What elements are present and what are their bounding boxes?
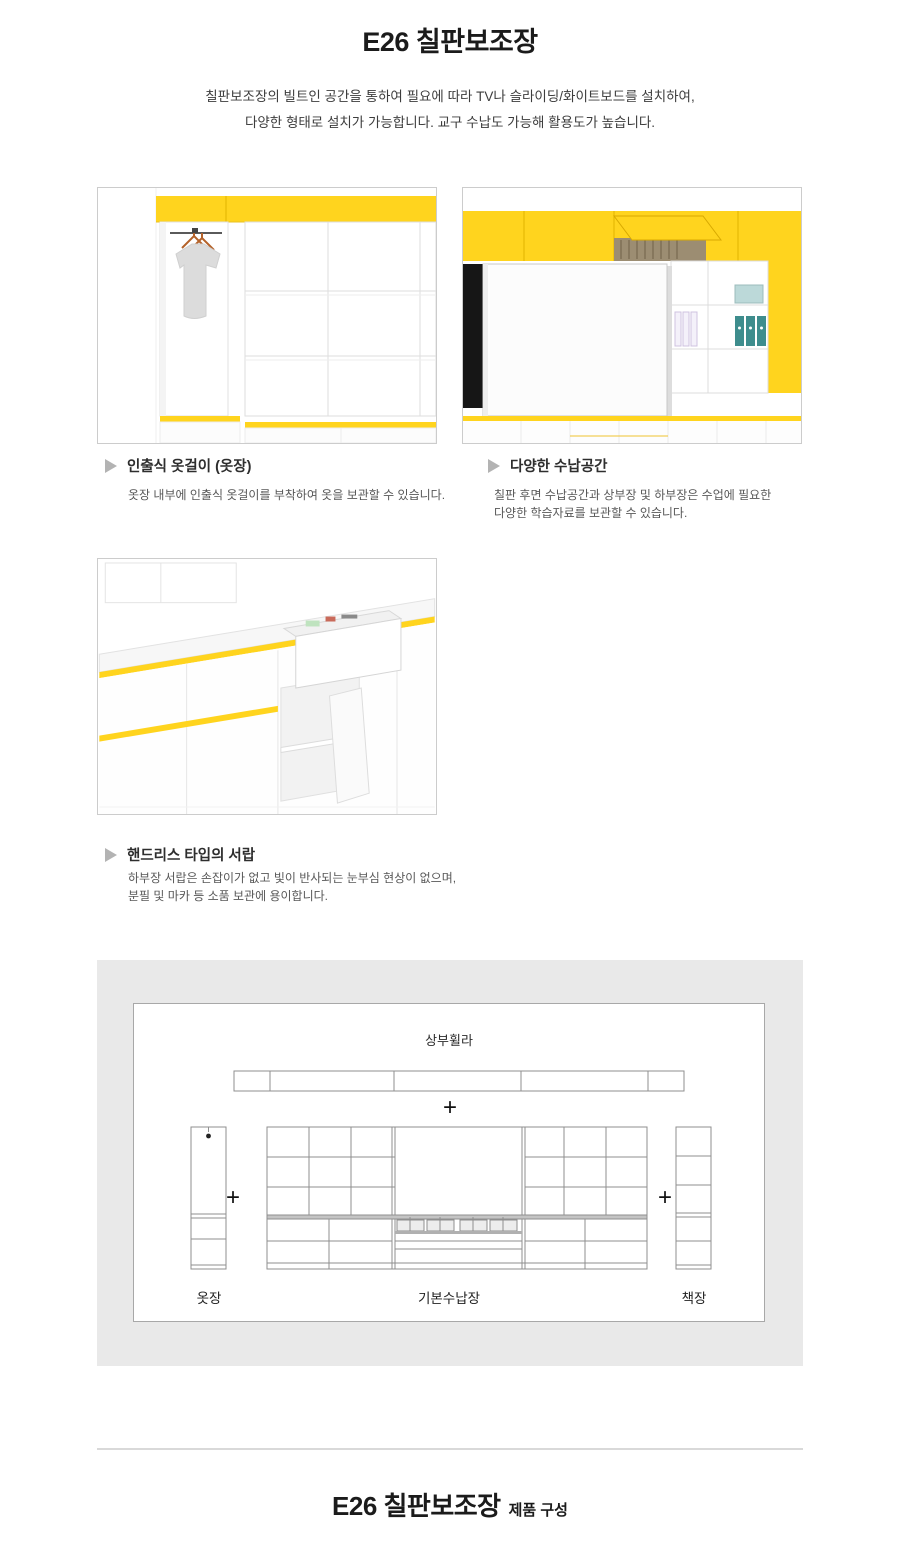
triangle-right-icon: [488, 459, 500, 473]
wardrobe-opening: [160, 222, 228, 416]
triangle-right-icon: [105, 848, 117, 862]
flap-opening: [614, 238, 706, 261]
teal-box: [735, 285, 763, 303]
composition-diagram: 상부휠라 + + + 옷장 기본수납장 책장: [133, 1003, 765, 1322]
feature-desc-3: 하부장 서랍은 손잡이가 없고 빛이 반사되는 눈부심 현상이 없으며, 분필 …: [128, 869, 456, 905]
bookcase-label: 책장: [658, 1287, 730, 1307]
top-filler-bar: [234, 1071, 684, 1091]
sliding-whiteboard: [483, 264, 672, 416]
open-flap-door: [614, 216, 721, 240]
desc-line: 하부장 서랍은 손잡이가 없고 빛이 반사되는 눈부심 현상이 없으며,: [128, 869, 456, 887]
page-title: E26 칠판보조장: [0, 20, 900, 59]
wardrobe-illustration: [98, 188, 436, 443]
subtitle-line-1: 칠판보조장의 빌트인 공간을 통하여 필요에 따라 TV나 슬라이딩/화이트보드…: [0, 84, 900, 110]
bookcase-unit: [676, 1127, 711, 1269]
white-binders: [675, 312, 697, 346]
plus-sign: +: [650, 1186, 680, 1210]
yellow-side-panel: [768, 261, 801, 393]
plus-sign: +: [218, 1186, 248, 1210]
drawer-contents: [306, 621, 320, 627]
feature-desc-1: 옷장 내부에 인출식 옷걸이를 부착하여 옷을 보관할 수 있습니다.: [128, 486, 445, 504]
footer-title-main: E26 칠판보조장: [332, 1491, 501, 1521]
upper-shelf-corner: [105, 563, 236, 603]
desc-line: 칠판 후면 수납공간과 상부장 및 하부장은 수업에 필요한: [494, 486, 771, 504]
yellow-top-cabinet: [156, 196, 436, 222]
rail-bracket: [192, 228, 198, 233]
feature-title: 인출식 옷걸이 (옷장): [127, 455, 251, 476]
plus-sign: +: [435, 1096, 465, 1120]
feature-heading-3: 핸드리스 타입의 서랍: [105, 844, 255, 865]
desc-line: 분필 및 마카 등 소품 보관에 용이합니다.: [128, 887, 456, 905]
feature-desc-2: 칠판 후면 수납공간과 상부장 및 하부장은 수업에 필요한 다양한 학습자료를…: [494, 486, 771, 522]
footer-title-suffix: 제품 구성: [509, 1502, 568, 1519]
yellow-top-cabinet: [463, 211, 801, 261]
feature-heading-1: 인출식 옷걸이 (옷장): [105, 455, 251, 476]
product-photo-wardrobe: [97, 187, 437, 444]
feature-heading-2: 다양한 수납공간: [488, 455, 607, 476]
composition-section: 상부휠라 + + + 옷장 기본수납장 책장: [97, 960, 803, 1366]
open-shelf-grid: [245, 222, 436, 416]
subtitle-line-2: 다양한 형태로 설치가 가능합니다. 교구 수납도 가능해 활용도가 높습니다.: [0, 110, 900, 136]
composition-lineart: [134, 1004, 764, 1321]
product-photo-whiteboard: [462, 187, 802, 444]
rear-shelf-grid: [671, 261, 768, 393]
drawer-illustration: [98, 559, 436, 814]
lower-cabinet: [463, 416, 801, 443]
desc-line: 다양한 학습자료를 보관할 수 있습니다.: [494, 504, 771, 522]
triangle-right-icon: [105, 459, 117, 473]
feature-title: 다양한 수납공간: [510, 455, 607, 476]
product-detail-page: { "page": { "title": "E26 칠판보조장", "subti…: [0, 0, 900, 1554]
product-photo-drawer: [97, 558, 437, 815]
teal-binders: [735, 316, 766, 346]
filler-label: 상부휠라: [134, 1030, 764, 1049]
footer-title: E26 칠판보조장제품 구성: [0, 1486, 900, 1523]
whiteboard-illustration: [463, 188, 801, 443]
drawer-assembly: [395, 1217, 522, 1249]
main-storage-unit: [267, 1127, 647, 1269]
feature-title: 핸드리스 타입의 서랍: [127, 844, 255, 865]
page-subtitle: 칠판보조장의 빌트인 공간을 통하여 필요에 따라 TV나 슬라이딩/화이트보드…: [0, 84, 900, 136]
section-divider: [97, 1448, 803, 1450]
desc-line: 옷장 내부에 인출식 옷걸이를 부착하여 옷을 보관할 수 있습니다.: [128, 486, 445, 504]
